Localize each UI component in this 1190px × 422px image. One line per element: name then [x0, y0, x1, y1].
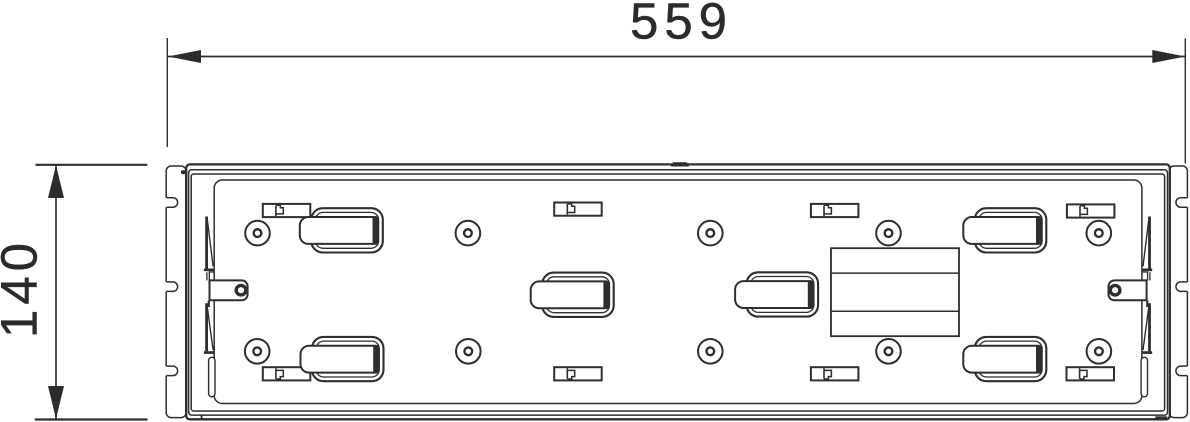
svg-text:140: 140: [0, 238, 48, 338]
svg-text:559: 559: [630, 0, 733, 50]
